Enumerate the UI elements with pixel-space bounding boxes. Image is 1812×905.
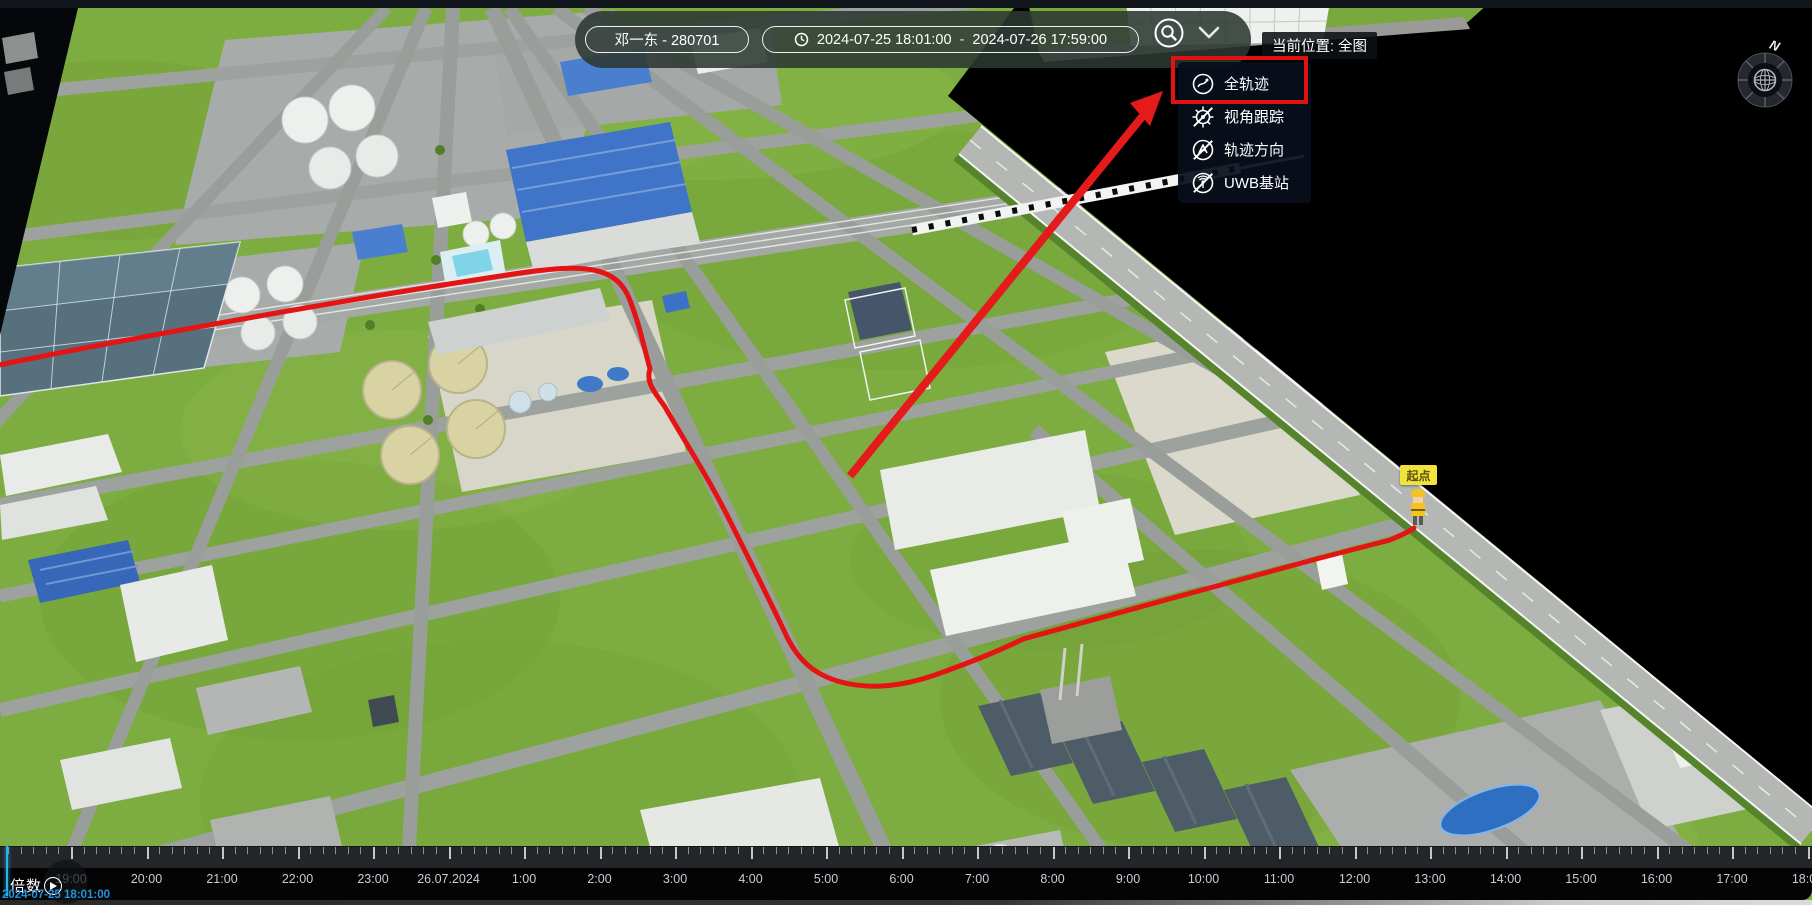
worker-leg (1413, 516, 1417, 525)
minor-tick (1543, 847, 1544, 854)
minor-tick (1304, 847, 1305, 854)
minor-tick (8, 847, 9, 854)
view-follow-icon (1191, 105, 1215, 129)
minor-tick (260, 847, 261, 854)
minor-tick (914, 847, 915, 854)
minor-tick (1040, 847, 1041, 854)
minor-tick (46, 847, 47, 854)
hour-tick (147, 847, 149, 859)
timeline-hour-label: 26.07.2024 (417, 872, 480, 886)
trajectory-playback-screen: 起点 邓一东 - 280701 2024-07-25 18:01:00 - 20… (0, 0, 1812, 905)
minor-tick (335, 847, 336, 854)
hour-tick (600, 847, 602, 859)
minor-tick (209, 847, 210, 854)
minor-tick (1191, 847, 1192, 854)
timeline: 19:0020:0021:0022:0023:0026.07.20241:002… (0, 846, 1812, 905)
minor-tick (1342, 847, 1343, 854)
minor-tick (927, 847, 928, 854)
minor-tick (1317, 847, 1318, 854)
timeline-ruler[interactable] (0, 846, 1812, 868)
minor-tick (562, 847, 563, 854)
hour-tick (826, 847, 828, 859)
minor-tick (197, 847, 198, 854)
minor-tick (1367, 847, 1368, 854)
minor-tick (411, 847, 412, 854)
minor-tick (1468, 847, 1469, 854)
worker-figure[interactable] (1409, 489, 1427, 527)
minor-tick (172, 847, 173, 854)
timeline-hour-label: 7:00 (965, 872, 989, 886)
minor-tick (1493, 847, 1494, 854)
minor-tick (1770, 847, 1771, 854)
minor-tick (1745, 847, 1746, 854)
map-canvas[interactable] (0, 0, 1812, 905)
timeline-hour-label: 5:00 (814, 872, 838, 886)
minor-tick (1027, 847, 1028, 854)
timeline-hour-label: 4:00 (738, 872, 762, 886)
minor-tick (1795, 847, 1796, 854)
minor-tick (990, 847, 991, 854)
minor-tick (1103, 847, 1104, 854)
hour-tick (449, 847, 451, 859)
minor-tick (1556, 847, 1557, 854)
minor-tick (235, 847, 236, 854)
minor-tick (1568, 847, 1569, 854)
minor-tick (1241, 847, 1242, 854)
hour-tick (977, 847, 979, 859)
hour-tick (1430, 847, 1432, 859)
minor-tick (323, 847, 324, 854)
toolbar: 邓一东 - 280701 2024-07-25 18:01:00 - 2024-… (575, 11, 1251, 68)
top-edge-strip (0, 0, 1812, 8)
timeline-hour-label: 10:00 (1188, 872, 1219, 886)
timeline-hour-label: 20:00 (131, 872, 162, 886)
minor-tick (1480, 847, 1481, 854)
minor-tick (1178, 847, 1179, 854)
hour-tick (1808, 847, 1810, 859)
hour-tick (1581, 847, 1583, 859)
minor-tick (1015, 847, 1016, 854)
timeline-hour-label: 17:00 (1716, 872, 1747, 886)
minor-tick (423, 847, 424, 854)
minor-tick (1631, 847, 1632, 854)
timeline-hour-label: 6:00 (889, 872, 913, 886)
compass-globe-icon (1755, 70, 1776, 91)
hour-tick (1128, 847, 1130, 859)
minor-tick (398, 847, 399, 854)
minor-tick (310, 847, 311, 854)
annotation-highlight-box (1171, 56, 1308, 104)
minor-tick (109, 847, 110, 854)
minor-tick (1682, 847, 1683, 854)
minor-tick (952, 847, 953, 854)
timeline-hour-label: 3:00 (663, 872, 687, 886)
track-direction-icon (1191, 138, 1215, 162)
minor-tick (1115, 847, 1116, 854)
locate-icon[interactable] (1152, 16, 1186, 50)
hour-tick (298, 847, 300, 859)
timeline-hour-label: 13:00 (1414, 872, 1445, 886)
minor-tick (1594, 847, 1595, 854)
minor-tick (1719, 847, 1720, 854)
minor-tick (587, 847, 588, 854)
minor-tick (159, 847, 160, 854)
menu-item-view-follow[interactable]: 视角跟踪 (1178, 100, 1311, 133)
minor-tick (272, 847, 273, 854)
current-time-label: 2024-07-25 18:01:00 (2, 889, 110, 901)
minor-tick (574, 847, 575, 854)
minor-tick (713, 847, 714, 854)
date-end: 2024-07-26 17:59:00 (972, 32, 1107, 48)
minor-tick (939, 847, 940, 854)
timeline-hour-label: 12:00 (1339, 872, 1370, 886)
hour-tick (1204, 847, 1206, 859)
minor-tick (813, 847, 814, 854)
hour-tick (222, 847, 224, 859)
minor-tick (21, 847, 22, 854)
minor-tick (360, 847, 361, 854)
menu-item-label: UWB基站 (1224, 172, 1289, 193)
timeline-hour-label: 18:00 (1792, 872, 1812, 886)
minor-tick (511, 847, 512, 854)
minor-tick (688, 847, 689, 854)
minor-tick (1078, 847, 1079, 854)
hour-tick (71, 847, 73, 859)
date-start: 2024-07-25 18:01:00 (817, 32, 952, 48)
hour-tick (902, 847, 904, 859)
minor-tick (864, 847, 865, 854)
timeline-hour-label: 1:00 (512, 872, 536, 886)
minor-tick (1329, 847, 1330, 854)
minor-tick (58, 847, 59, 854)
minor-tick (184, 847, 185, 854)
minor-tick (1153, 847, 1154, 854)
minor-tick (1417, 847, 1418, 854)
minor-tick (612, 847, 613, 854)
timeline-hour-label: 11:00 (1264, 872, 1294, 886)
current-position-label: 当前位置: 全图 (1262, 32, 1377, 59)
timeline-hour-label: 21:00 (206, 872, 237, 886)
minor-tick (1757, 847, 1758, 854)
minor-tick (1694, 847, 1695, 854)
minor-tick (1380, 847, 1381, 854)
bottom-edge-strip (0, 900, 1812, 905)
menu-item-label: 视角跟踪 (1224, 106, 1284, 127)
minor-tick (1707, 847, 1708, 854)
minor-tick (738, 847, 739, 854)
compass[interactable] (1729, 44, 1801, 116)
timeline-hour-label: 14:00 (1490, 872, 1521, 886)
timeline-hour-label: 23:00 (357, 872, 388, 886)
minor-tick (1518, 847, 1519, 854)
menu-item-label: 轨迹方向 (1224, 139, 1284, 160)
minor-tick (839, 847, 840, 854)
minor-tick (1266, 847, 1267, 854)
minor-tick (96, 847, 97, 854)
hour-tick (751, 847, 753, 859)
minor-tick (33, 847, 34, 854)
clock-icon (794, 32, 809, 47)
hour-tick (524, 847, 526, 859)
minor-tick (121, 847, 122, 854)
minor-tick (1619, 847, 1620, 854)
start-marker[interactable]: 起点 (1400, 465, 1437, 485)
minor-tick (1455, 847, 1456, 854)
hour-tick (675, 847, 677, 859)
minor-tick (1090, 847, 1091, 854)
minor-tick (1606, 847, 1607, 854)
date-range-picker[interactable]: 2024-07-25 18:01:00 - 2024-07-26 17:59:0… (762, 26, 1139, 53)
minor-tick (876, 847, 877, 854)
hour-tick (1506, 847, 1508, 859)
worker-hat (1411, 489, 1425, 497)
minor-tick (1644, 847, 1645, 854)
uwb-station-icon (1191, 171, 1215, 195)
hour-tick (1732, 847, 1734, 859)
minor-tick (247, 847, 248, 854)
minor-tick (1141, 847, 1142, 854)
minor-tick (1292, 847, 1293, 854)
hour-tick (1355, 847, 1357, 859)
minor-tick (637, 847, 638, 854)
menu-item-uwb-station[interactable]: UWB基站 (1178, 166, 1311, 199)
worker-leg (1419, 516, 1423, 525)
minor-tick (650, 847, 651, 854)
timeline-hour-label: 8:00 (1040, 872, 1064, 886)
worker-belt (1411, 509, 1425, 511)
date-separator: - (960, 32, 965, 48)
person-select-value: 邓一东 - 280701 (615, 29, 720, 50)
minor-tick (549, 847, 550, 854)
minor-tick (776, 847, 777, 854)
minor-tick (662, 847, 663, 854)
minor-tick (1216, 847, 1217, 854)
minor-tick (801, 847, 802, 854)
minor-tick (964, 847, 965, 854)
minor-tick (386, 847, 387, 854)
minor-tick (851, 847, 852, 854)
minor-tick (537, 847, 538, 854)
hour-tick (1053, 847, 1055, 859)
minor-tick (134, 847, 135, 854)
minor-tick (1002, 847, 1003, 854)
minor-tick (1065, 847, 1066, 854)
minor-tick (1405, 847, 1406, 854)
minor-tick (763, 847, 764, 854)
person-select[interactable]: 邓一东 - 280701 (585, 26, 749, 53)
timeline-hour-label: 2:00 (587, 872, 611, 886)
minor-tick (499, 847, 500, 854)
minor-tick (486, 847, 487, 854)
minor-tick (1531, 847, 1532, 854)
timeline-hour-label: 15:00 (1565, 872, 1596, 886)
minor-tick (1229, 847, 1230, 854)
minor-tick (1669, 847, 1670, 854)
minor-tick (84, 847, 85, 854)
timeline-hour-label: 22:00 (282, 872, 313, 886)
hour-tick (1279, 847, 1281, 859)
menu-item-track-direction[interactable]: 轨迹方向 (1178, 133, 1311, 166)
minor-tick (788, 847, 789, 854)
timeline-hour-label: 16:00 (1641, 872, 1672, 886)
minor-tick (725, 847, 726, 854)
hour-tick (373, 847, 375, 859)
minor-tick (1254, 847, 1255, 854)
minor-tick (348, 847, 349, 854)
minor-tick (1443, 847, 1444, 854)
minor-tick (474, 847, 475, 854)
minor-tick (1166, 847, 1167, 854)
minor-tick (461, 847, 462, 854)
minor-tick (889, 847, 890, 854)
chevron-down-icon[interactable] (1197, 24, 1221, 42)
minor-tick (1782, 847, 1783, 854)
minor-tick (1392, 847, 1393, 854)
timeline-hour-label: 9:00 (1116, 872, 1140, 886)
minor-tick (285, 847, 286, 854)
minor-tick (436, 847, 437, 854)
minor-tick (625, 847, 626, 854)
minor-tick (700, 847, 701, 854)
hour-tick (1657, 847, 1659, 859)
